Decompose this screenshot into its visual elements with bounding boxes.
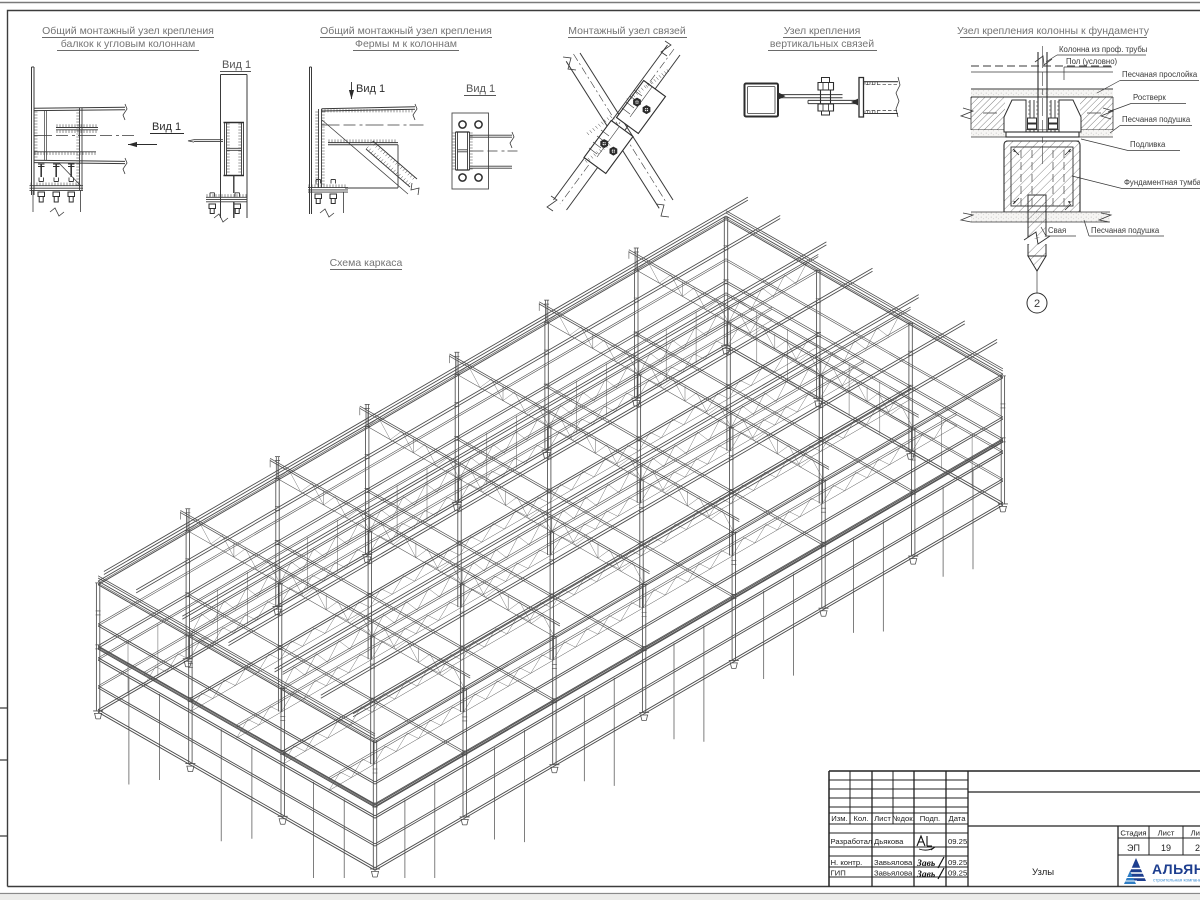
- svg-text:Схема каркаса: Схема каркаса: [330, 257, 403, 269]
- svg-text:Дьякова: Дьякова: [874, 837, 904, 846]
- svg-text:Свая: Свая: [1048, 226, 1066, 235]
- svg-text:Песчаная подушка: Песчаная подушка: [1122, 115, 1191, 124]
- svg-text:Фермы м к колоннам: Фермы м к колоннам: [355, 38, 457, 50]
- svg-text:Подливка: Подливка: [1130, 140, 1166, 149]
- svg-text:Завьялова: Завьялова: [874, 858, 913, 867]
- svg-text:строительная компания: строительная компания: [1153, 878, 1200, 883]
- svg-text:Вид 1: Вид 1: [356, 83, 385, 95]
- svg-text:Пол (условно): Пол (условно): [1066, 57, 1118, 66]
- svg-text:Н. контр.: Н. контр.: [831, 858, 863, 867]
- svg-text:2: 2: [1034, 298, 1040, 310]
- svg-text:Дата: Дата: [948, 814, 966, 823]
- svg-text:Вид 1: Вид 1: [466, 83, 495, 95]
- svg-text:Лист: Лист: [1158, 829, 1175, 838]
- svg-text:Завь: Завь: [916, 859, 936, 869]
- svg-text:Кол.: Кол.: [853, 814, 868, 823]
- svg-text:Подп.: Подп.: [920, 814, 940, 823]
- svg-text:Узлы: Узлы: [1032, 867, 1054, 878]
- svg-text:АЛЬЯНС: АЛЬЯНС: [1152, 861, 1200, 877]
- svg-text:Песчаная подушка: Песчаная подушка: [1091, 226, 1160, 235]
- svg-text:19: 19: [1161, 843, 1171, 853]
- svg-text:Колонна из проф. трубы: Колонна из проф. трубы: [1059, 45, 1148, 54]
- svg-text:09.25: 09.25: [948, 869, 967, 878]
- svg-text:Изм.: Изм.: [831, 814, 847, 823]
- svg-text:ГИП: ГИП: [831, 869, 846, 878]
- svg-text:Узел крепления колонны к фунда: Узел крепления колонны к фундаменту: [957, 25, 1150, 37]
- svg-text:Вид 1: Вид 1: [222, 59, 251, 71]
- svg-text:№док.: №док.: [892, 814, 915, 823]
- svg-text:Лист: Лист: [874, 814, 891, 823]
- svg-text:Лист: Лист: [1191, 829, 1200, 838]
- svg-text:ЭП: ЭП: [1127, 843, 1140, 853]
- svg-text:Песчаная прослойка: Песчаная прослойка: [1122, 70, 1198, 79]
- svg-text:09.25: 09.25: [948, 858, 967, 867]
- svg-text:Завь: Завь: [916, 870, 936, 880]
- svg-text:Общий монтажный узел крепления: Общий монтажный узел крепления: [320, 25, 492, 37]
- svg-text:Стадия: Стадия: [1120, 829, 1146, 838]
- svg-text:Общий монтажный узел крепления: Общий монтажный узел крепления: [42, 25, 214, 37]
- svg-text:Разработал: Разработал: [831, 837, 873, 846]
- svg-text:балкок к угловым колоннам: балкок к угловым колоннам: [61, 38, 196, 50]
- svg-text:Вид 1: Вид 1: [152, 121, 181, 133]
- svg-text:Узел крепления: Узел крепления: [784, 25, 861, 37]
- svg-text:20: 20: [1195, 843, 1200, 853]
- svg-text:вертикальных связей: вертикальных связей: [770, 38, 874, 50]
- svg-text:09.25: 09.25: [948, 837, 967, 846]
- svg-text:Ростверк: Ростверк: [1133, 93, 1166, 102]
- svg-text:Завьялова: Завьялова: [874, 869, 913, 878]
- svg-text:Фундаментная тумба: Фундаментная тумба: [1124, 178, 1200, 187]
- svg-text:Монтажный узел связей: Монтажный узел связей: [568, 25, 686, 37]
